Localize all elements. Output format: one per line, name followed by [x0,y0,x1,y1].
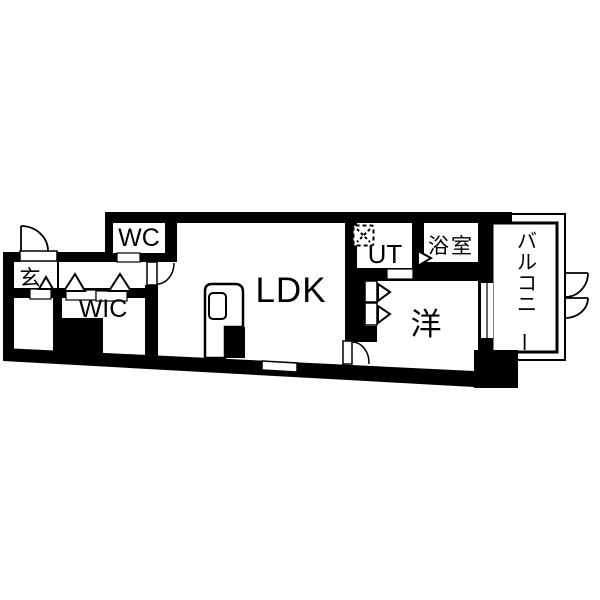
room-wic-label: WIC [79,295,128,323]
room-western-label: 洋 [411,307,442,342]
kitchen-step-block [225,327,245,358]
hall-door-leaf [147,262,157,285]
window-marker-western [481,283,493,338]
kitchen-sink-icon [209,293,226,319]
room-entrance-label: 玄 [20,267,41,290]
wc-door-marker [117,253,140,262]
room-shoe-closet-floor [14,298,53,348]
bedroom-door-leaf [343,341,352,364]
wall-segment-left-top [3,252,20,262]
wall-segment-wc-right [165,212,177,262]
window-marker-ldk [262,361,297,372]
kitchen-unit [205,284,245,358]
wall-segment-left-outer [3,262,14,350]
room-bathroom-label: 浴室 [428,235,474,258]
entrance-threshold [20,251,57,261]
room-ut-label: UT [368,239,403,269]
corner-step-block [474,350,518,388]
room-ldk-label: LDK [255,271,326,310]
floorplan-image: WC WIC LDK 玄 UT 浴室 洋 バルコニー [0,0,600,600]
room-wc-label: WC [118,224,160,252]
wall-segment-closet [357,280,365,326]
wall-segment-closet-bottom [357,326,377,342]
closet-panel-lower [365,303,377,325]
sliding-door-marker-ut [387,269,413,279]
sliding-door-marker-shoe [30,289,51,299]
closet-panel-upper [365,281,377,302]
wall-segment-corridor-top [57,252,165,262]
wall-segment-wic-ldk [145,285,158,362]
